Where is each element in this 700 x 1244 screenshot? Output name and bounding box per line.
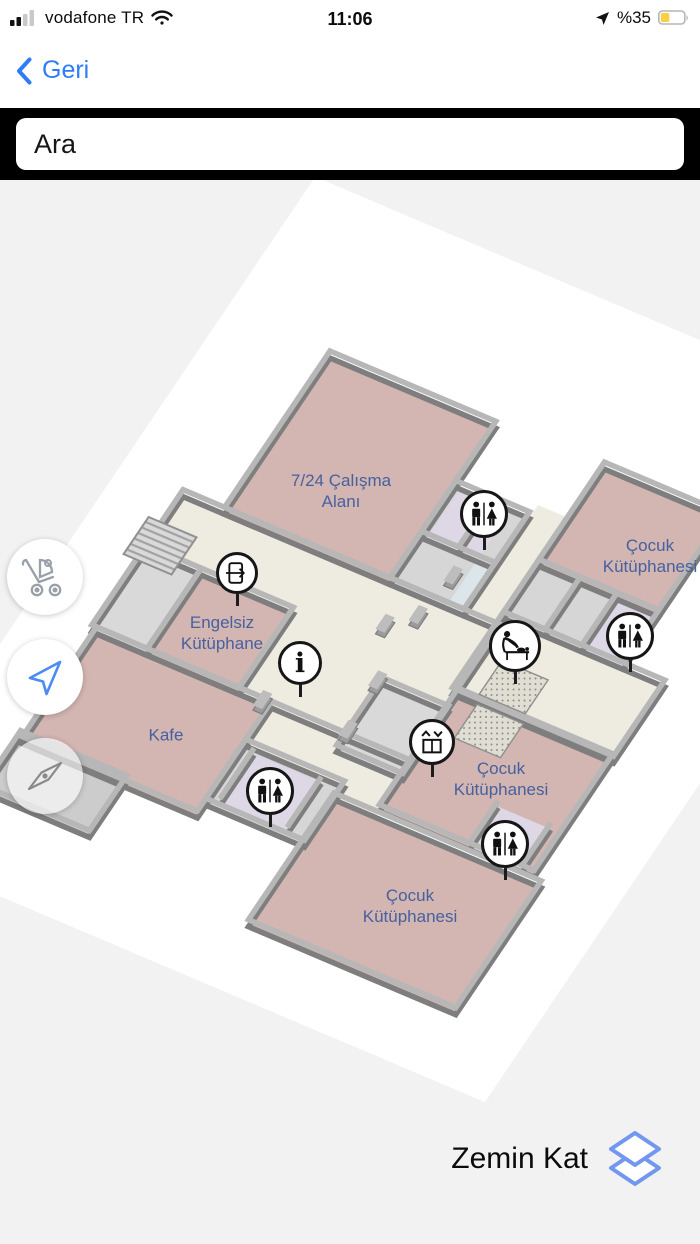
compass-button[interactable] xyxy=(7,738,83,814)
marker-wc-east[interactable] xyxy=(606,612,654,672)
layers-icon xyxy=(606,1128,664,1190)
elevator-icon xyxy=(413,723,451,761)
chevron-left-icon xyxy=(16,57,32,85)
current-floor-label: Zemin Kat xyxy=(451,1142,588,1176)
battery-icon xyxy=(658,10,690,26)
indoor-map[interactable]: 7/24 Çalışma Alanı Çocuk Kütüphanesi Eng… xyxy=(0,0,700,1244)
location-arrow-icon xyxy=(595,11,610,26)
marker-wc-south[interactable] xyxy=(481,820,529,880)
exit-icon xyxy=(220,556,254,590)
marker-baby-care[interactable] xyxy=(489,620,541,684)
info-icon: i xyxy=(282,645,318,681)
stroller-routes-button[interactable] xyxy=(7,539,83,615)
back-button[interactable]: Geri xyxy=(16,56,89,85)
search-band xyxy=(0,108,700,180)
marker-wc-north[interactable] xyxy=(460,490,508,550)
status-bar: vodafone TR 11:06 %35 xyxy=(0,0,700,46)
wc-icon xyxy=(485,824,525,864)
my-location-button[interactable] xyxy=(7,639,83,715)
app-screen: 7/24 Çalışma Alanı Çocuk Kütüphanesi Eng… xyxy=(0,0,700,1244)
battery-percent-label: %35 xyxy=(617,8,651,28)
wc-icon xyxy=(464,494,504,534)
navigation-bar: Geri xyxy=(0,46,700,108)
search-input[interactable] xyxy=(16,118,684,170)
my-location-icon xyxy=(22,654,68,700)
wc-icon xyxy=(250,771,290,811)
floor-plan-3d xyxy=(0,0,700,1244)
stroller-icon xyxy=(21,553,69,601)
marker-elevator[interactable] xyxy=(409,719,455,777)
marker-exit[interactable] xyxy=(216,552,258,606)
svg-text:i: i xyxy=(295,648,305,679)
wc-icon xyxy=(610,616,650,656)
back-button-label: Geri xyxy=(42,56,89,85)
floor-switcher[interactable]: Zemin Kat xyxy=(451,1128,664,1190)
baby-care-icon xyxy=(493,624,537,668)
compass-icon xyxy=(20,751,70,801)
marker-info[interactable]: i xyxy=(278,641,322,697)
marker-wc-west[interactable] xyxy=(246,767,294,827)
